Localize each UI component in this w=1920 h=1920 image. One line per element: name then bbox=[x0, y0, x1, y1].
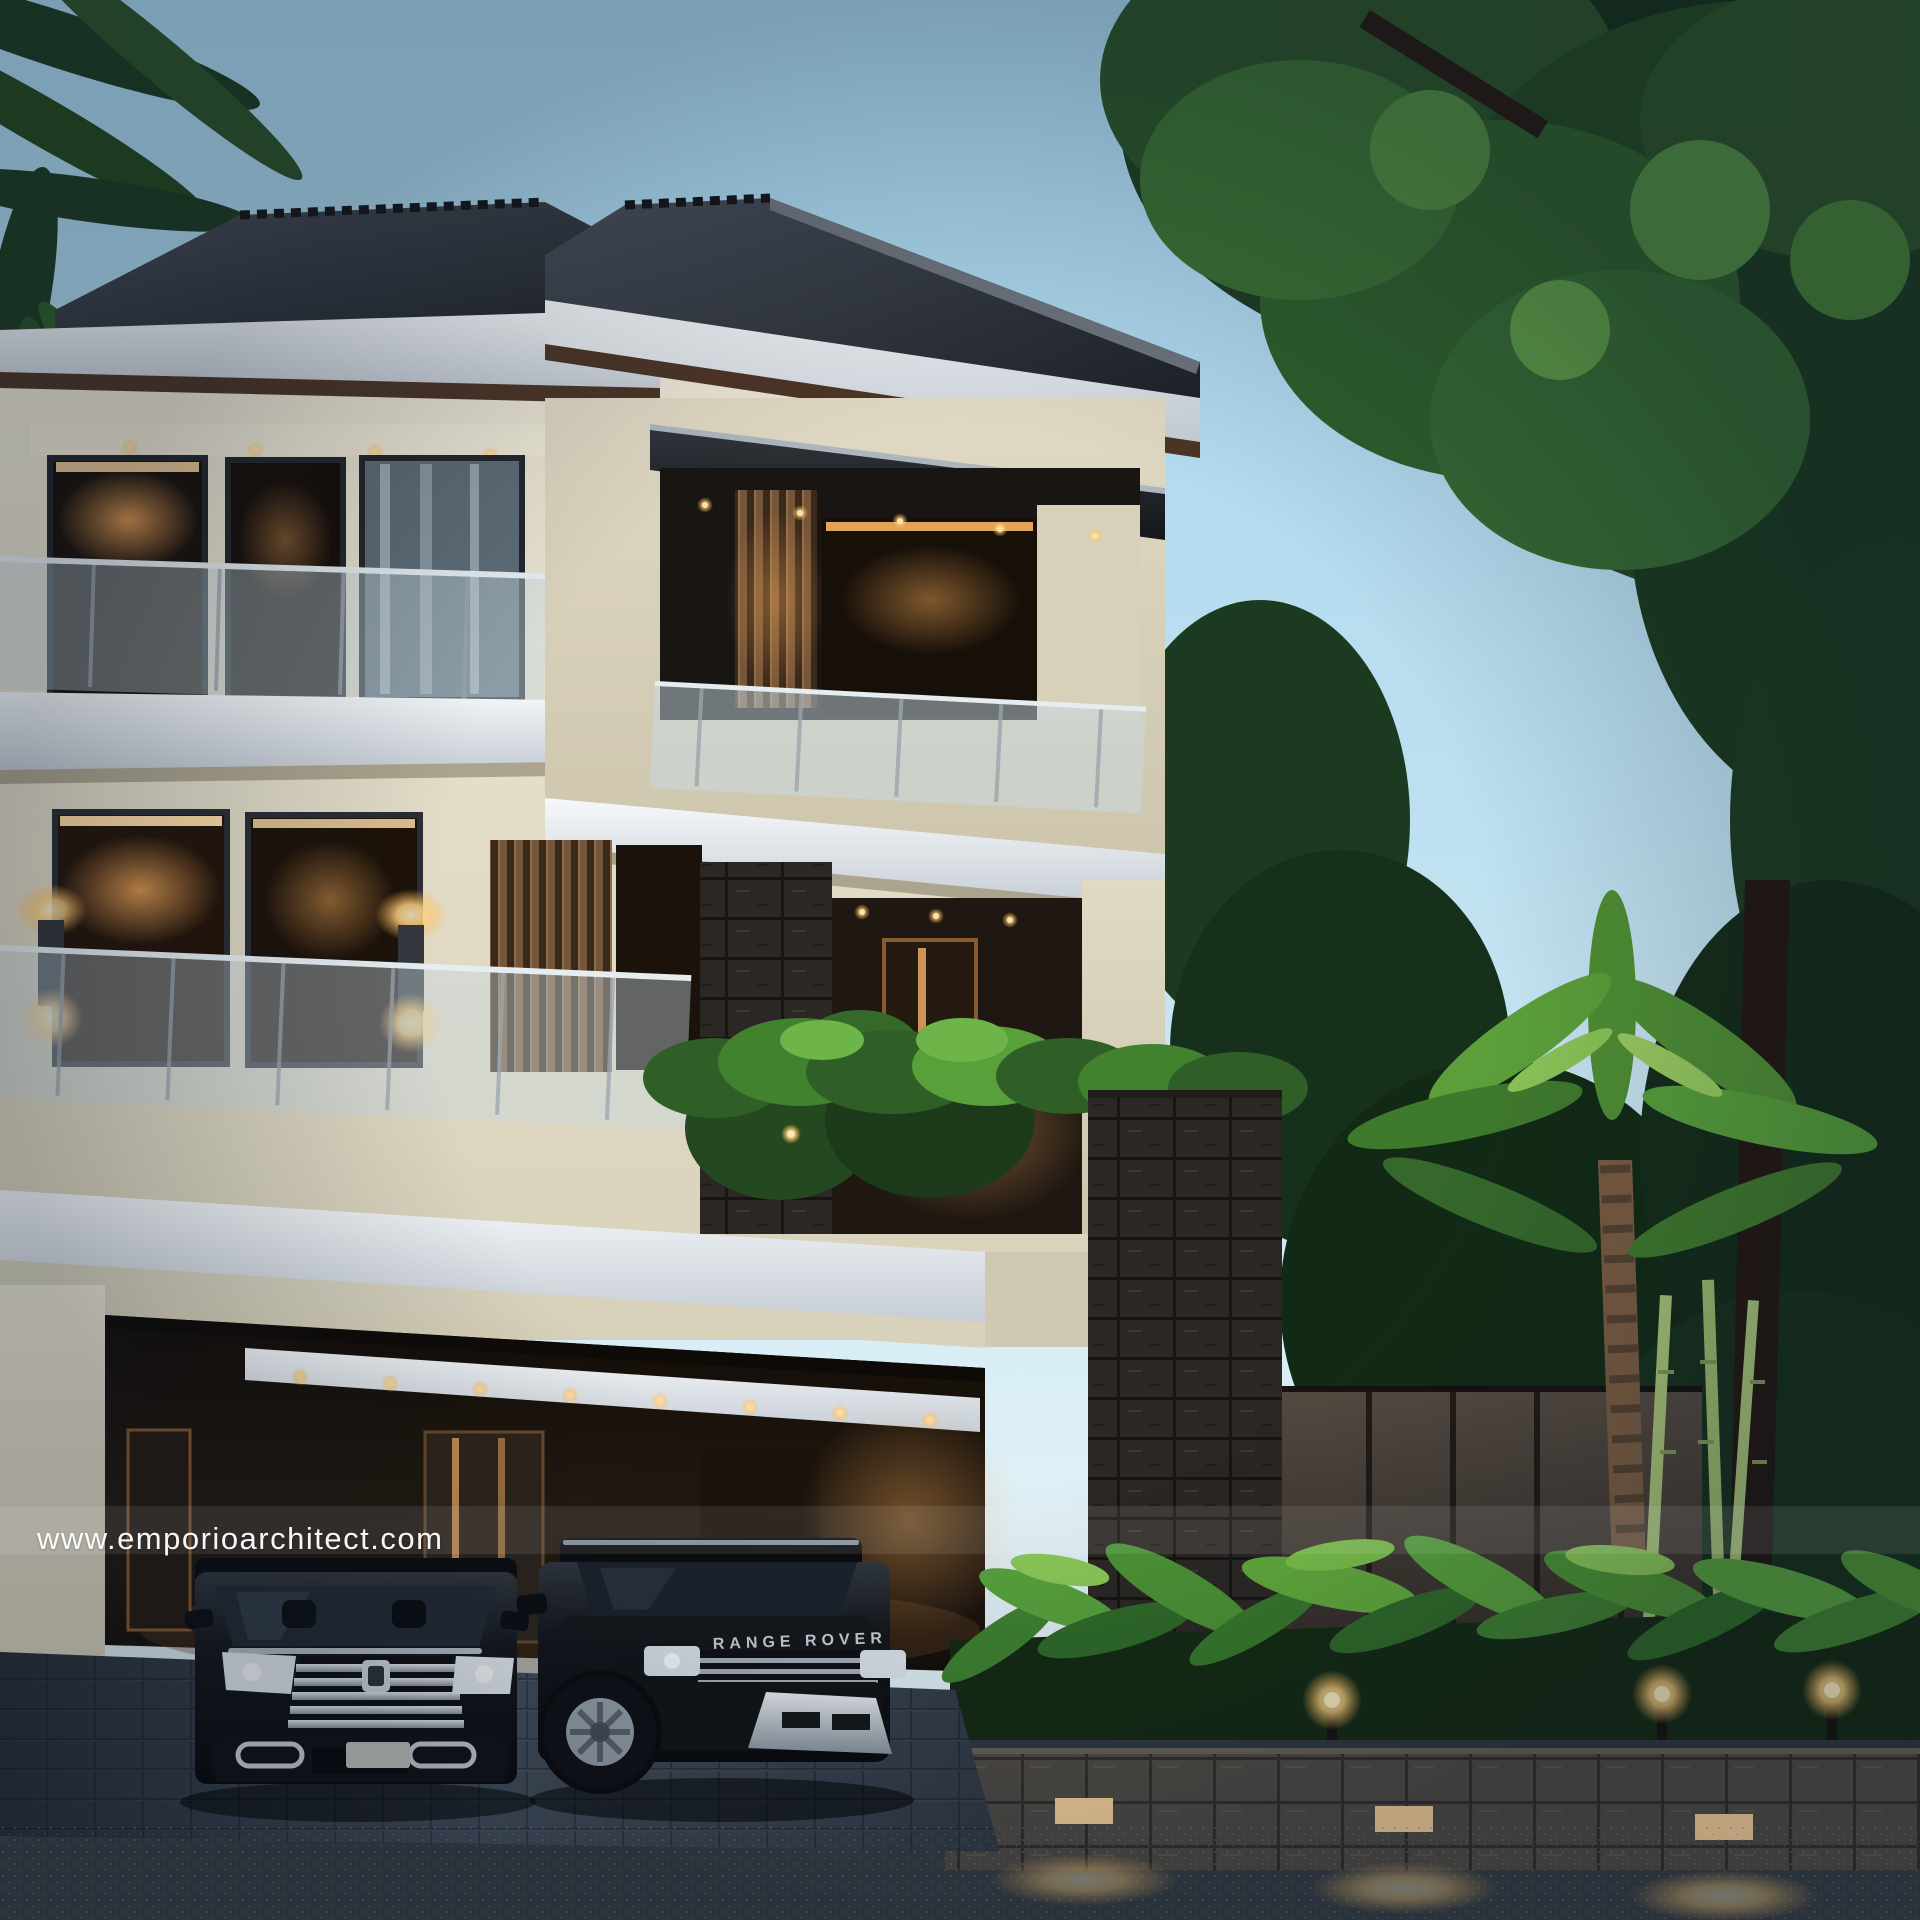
watermark-url: www.emporioarchitect.com bbox=[37, 1521, 443, 1557]
scene: RANGE ROVER bbox=[0, 0, 1920, 1920]
architect-render-image: RANGE ROVER www.emporioarchitect.com bbox=[0, 0, 1920, 1920]
dusk-vignette bbox=[0, 0, 1920, 1920]
